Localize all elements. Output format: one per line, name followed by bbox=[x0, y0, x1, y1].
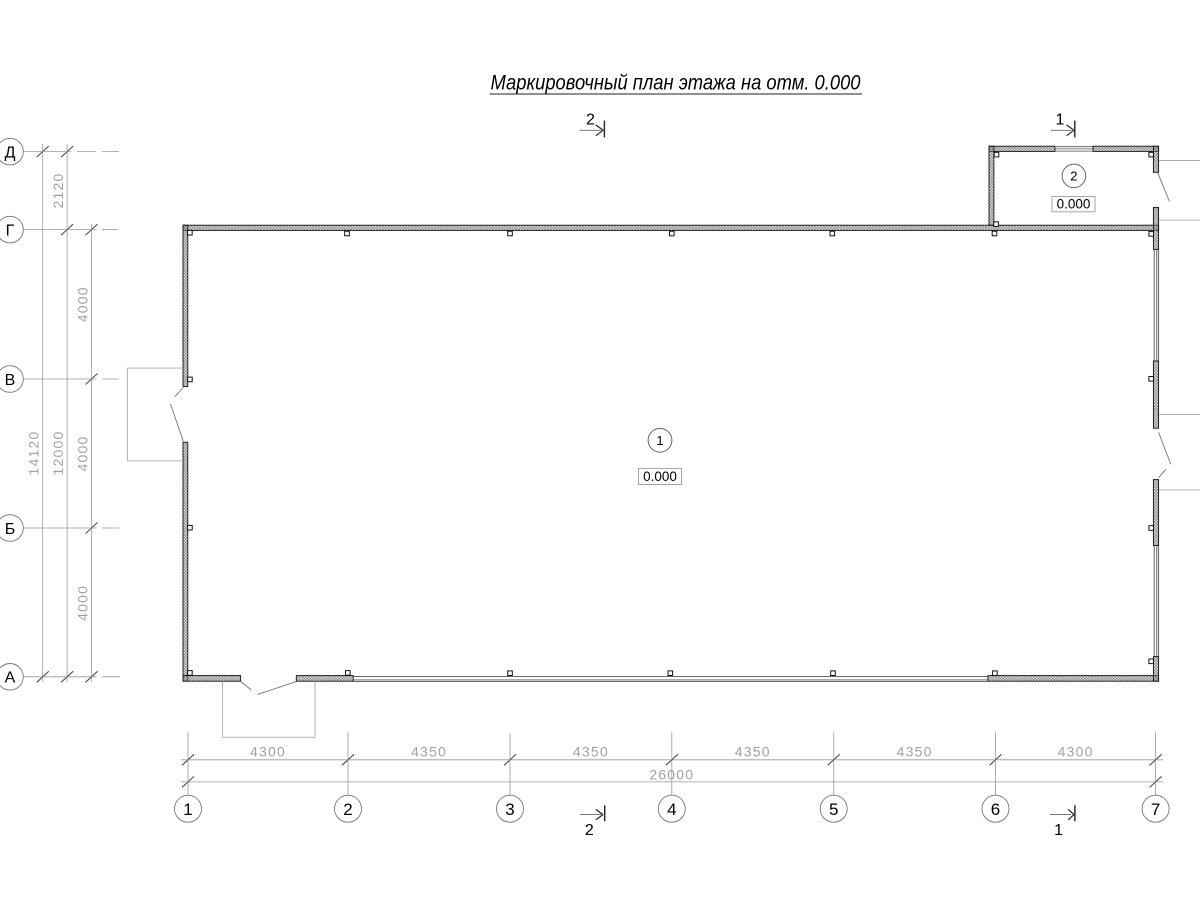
svg-text:4350: 4350 bbox=[573, 743, 609, 759]
svg-text:0.000: 0.000 bbox=[1057, 197, 1091, 212]
svg-text:4: 4 bbox=[667, 800, 676, 819]
svg-text:2: 2 bbox=[585, 822, 594, 839]
svg-text:2: 2 bbox=[1070, 169, 1077, 184]
svg-text:2120: 2120 bbox=[50, 173, 66, 209]
svg-text:4000: 4000 bbox=[74, 286, 90, 322]
svg-text:12000: 12000 bbox=[50, 431, 66, 476]
svg-text:4300: 4300 bbox=[1058, 743, 1094, 759]
svg-text:4000: 4000 bbox=[74, 436, 90, 472]
svg-text:4350: 4350 bbox=[897, 743, 933, 759]
svg-text:В: В bbox=[5, 372, 16, 389]
svg-text:1: 1 bbox=[1056, 112, 1065, 129]
svg-text:Маркировочный план этажа на от: Маркировочный план этажа на отм. 0.000 bbox=[491, 71, 861, 94]
svg-text:Б: Б bbox=[5, 521, 16, 538]
svg-text:5: 5 bbox=[829, 800, 838, 819]
svg-text:Г: Г bbox=[6, 222, 15, 239]
svg-text:4350: 4350 bbox=[735, 743, 771, 759]
svg-text:7: 7 bbox=[1151, 800, 1160, 819]
svg-text:0.000: 0.000 bbox=[643, 469, 677, 484]
svg-text:6: 6 bbox=[991, 800, 1000, 819]
svg-text:4350: 4350 bbox=[411, 743, 447, 759]
svg-text:Д: Д bbox=[5, 144, 16, 161]
svg-text:2: 2 bbox=[343, 800, 352, 819]
svg-text:3: 3 bbox=[505, 800, 514, 819]
svg-text:4000: 4000 bbox=[74, 585, 90, 621]
svg-text:4300: 4300 bbox=[250, 743, 286, 759]
svg-text:14120: 14120 bbox=[26, 431, 42, 476]
svg-text:1: 1 bbox=[183, 800, 192, 819]
svg-text:2: 2 bbox=[586, 112, 595, 129]
svg-text:1: 1 bbox=[656, 433, 663, 448]
svg-text:А: А bbox=[5, 670, 16, 687]
svg-text:1: 1 bbox=[1054, 822, 1063, 839]
